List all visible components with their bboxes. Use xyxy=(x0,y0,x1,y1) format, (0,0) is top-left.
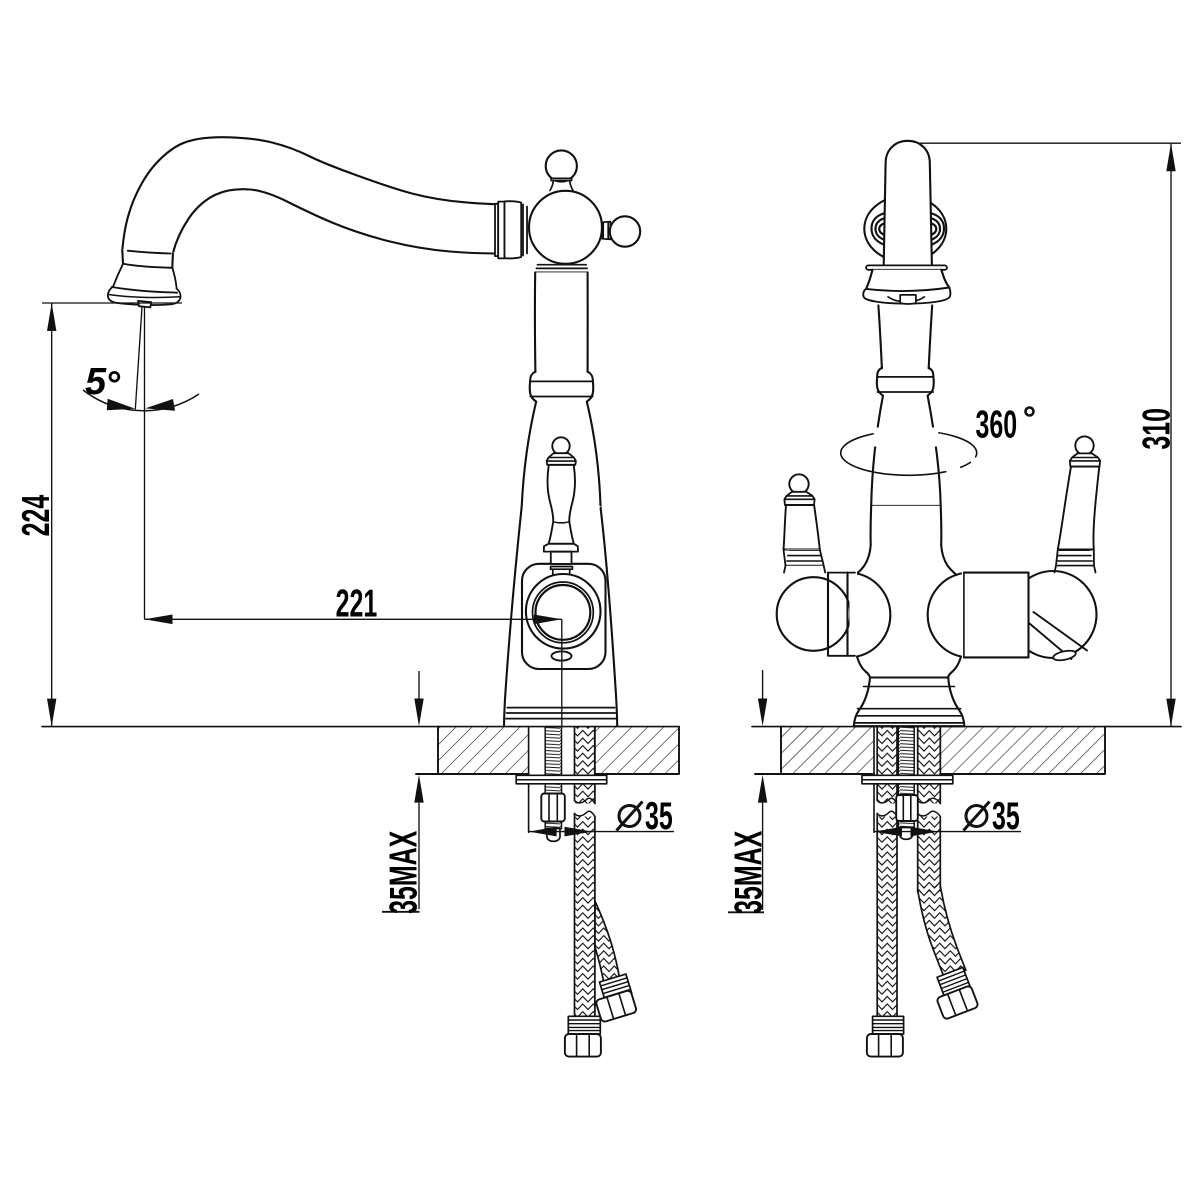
svg-text:360: 360 xyxy=(976,402,1018,446)
svg-text:°: ° xyxy=(107,364,122,405)
svg-text:35MAX: 35MAX xyxy=(381,831,425,914)
svg-text:224: 224 xyxy=(13,494,57,536)
svg-text:5: 5 xyxy=(85,361,107,403)
svg-text:221: 221 xyxy=(336,581,378,625)
svg-text:35: 35 xyxy=(992,793,1020,837)
svg-text:310: 310 xyxy=(1134,408,1178,450)
svg-text:35: 35 xyxy=(645,793,673,837)
svg-text:35MAX: 35MAX xyxy=(726,831,770,914)
